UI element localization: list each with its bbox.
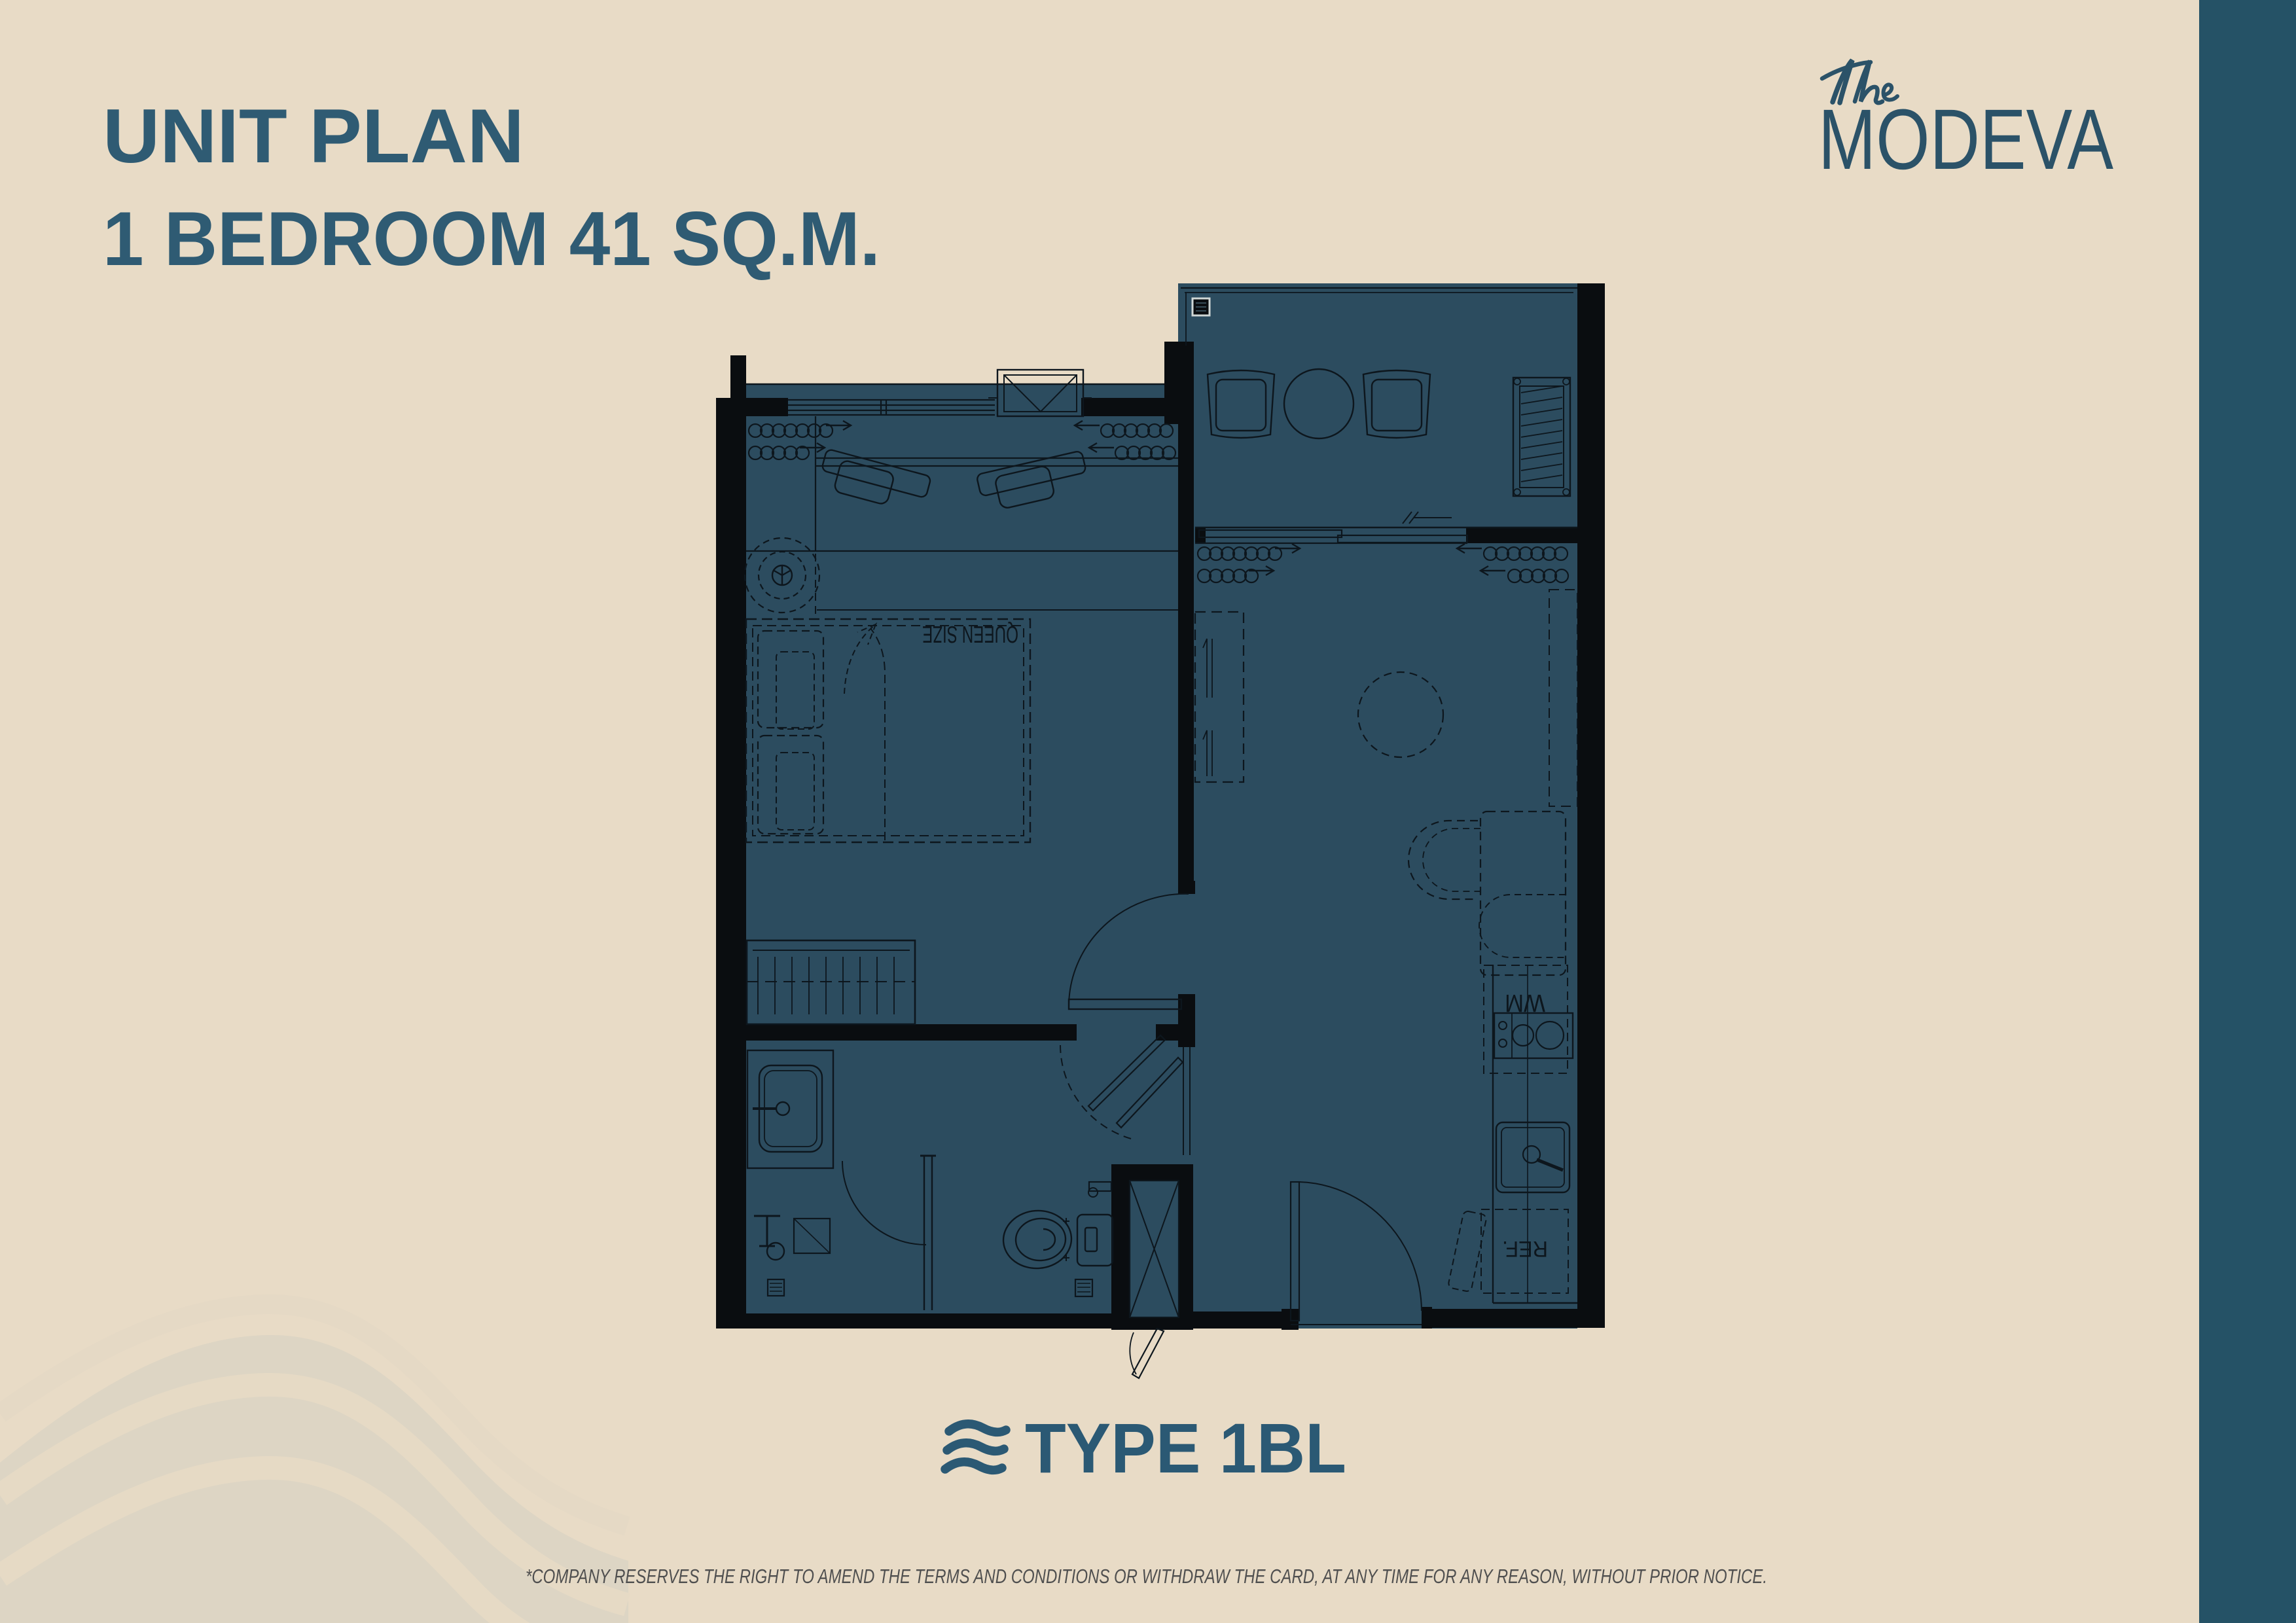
svg-text:QUEEN SIZE: QUEEN SIZE bbox=[922, 621, 1018, 648]
svg-text:1 BEDROOM 41 SQ.M.: 1 BEDROOM 41 SQ.M. bbox=[103, 196, 880, 281]
svg-text:TYPE 1BL: TYPE 1BL bbox=[1025, 1408, 1346, 1488]
svg-text:UNIT PLAN: UNIT PLAN bbox=[103, 93, 524, 179]
svg-text:WM: WM bbox=[1505, 989, 1545, 1016]
svg-text:*COMPANY RESERVES THE RIGHT TO: *COMPANY RESERVES THE RIGHT TO AMEND THE… bbox=[526, 1565, 1767, 1588]
svg-text:MODEVA: MODEVA bbox=[1818, 91, 2114, 187]
svg-text:REF.: REF. bbox=[1502, 1236, 1548, 1261]
